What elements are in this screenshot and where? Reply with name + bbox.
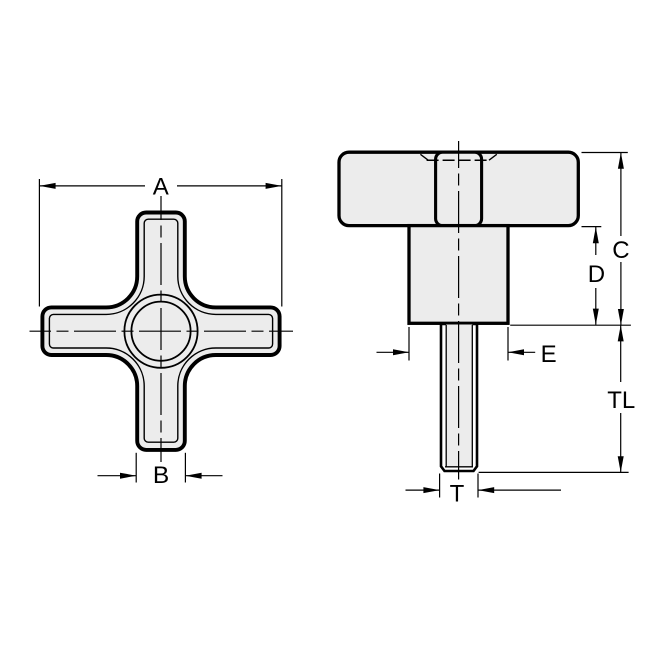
svg-text:T: T bbox=[450, 481, 465, 508]
svg-text:TL: TL bbox=[607, 387, 635, 414]
svg-text:E: E bbox=[541, 341, 557, 368]
svg-text:A: A bbox=[153, 174, 169, 201]
svg-text:C: C bbox=[612, 237, 629, 264]
svg-text:B: B bbox=[153, 462, 169, 489]
svg-text:D: D bbox=[588, 261, 605, 288]
